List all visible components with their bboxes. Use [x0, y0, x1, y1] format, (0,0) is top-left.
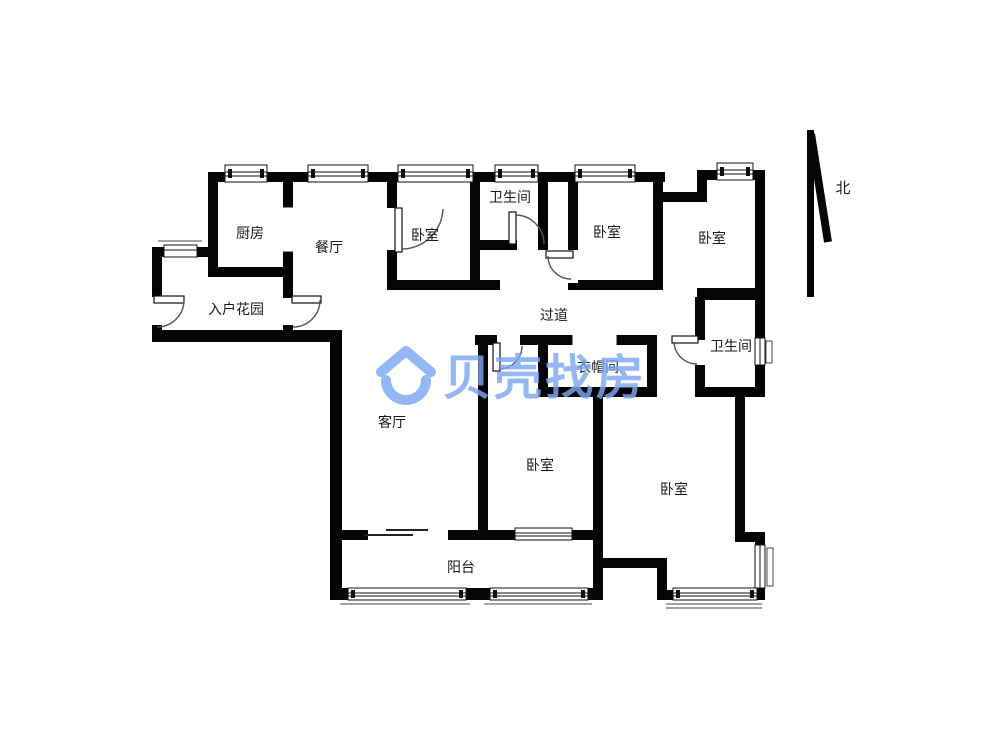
brand-watermark: 贝壳找房 [381, 351, 647, 405]
room-label-balcony: 阳台 [447, 559, 475, 575]
north-label: 北 [835, 180, 850, 197]
brand-wordmark: 贝壳找房 [443, 352, 647, 405]
floorplan-page: 厨房 餐厅 卧室 卫生间 卧室 卧室 入户花园 过道 衣帽间 卫生间 客厅 卧室… [0, 0, 999, 750]
room-label-bedroom-bottom-right: 卧室 [660, 481, 688, 497]
window [575, 165, 635, 182]
room-label-bedroom-top-left: 卧室 [411, 227, 439, 243]
window [308, 165, 368, 182]
room-label-bedroom-top-mid: 卧室 [593, 224, 621, 240]
window [666, 588, 762, 608]
window [717, 163, 753, 180]
home-icon [381, 351, 431, 400]
north-arrow [807, 130, 828, 297]
window [755, 338, 772, 365]
room-label-bedroom-top-right: 卧室 [698, 230, 726, 246]
room-label-living-room: 客厅 [378, 414, 406, 430]
floorplan-svg: 厨房 餐厅 卧室 卫生间 卧室 卧室 入户花园 过道 衣帽间 卫生间 客厅 卧室… [0, 0, 999, 750]
sliding-door [364, 534, 413, 536]
room-label-entry-garden: 入户花园 [208, 301, 264, 317]
window [340, 588, 470, 604]
room-label-dining: 餐厅 [315, 239, 343, 255]
door-entry-garden-left [154, 296, 184, 327]
room-label-bedroom-bottom-mid: 卧室 [526, 457, 554, 473]
room-label-kitchen: 厨房 [236, 225, 264, 241]
window [515, 528, 572, 540]
window [495, 165, 538, 182]
window [398, 165, 473, 182]
room-label-corridor: 过道 [540, 307, 568, 323]
window [225, 165, 267, 182]
door-bathroom-right [672, 336, 698, 364]
sliding-door [386, 529, 428, 531]
door-bedroom-top-mid [546, 251, 573, 279]
room-label-bathroom-right: 卫生间 [710, 338, 752, 354]
room-label-bathroom-top: 卫生间 [489, 189, 531, 205]
window [158, 241, 202, 257]
window [755, 545, 773, 588]
door-garden-to-dining [292, 296, 321, 327]
window [484, 588, 592, 604]
